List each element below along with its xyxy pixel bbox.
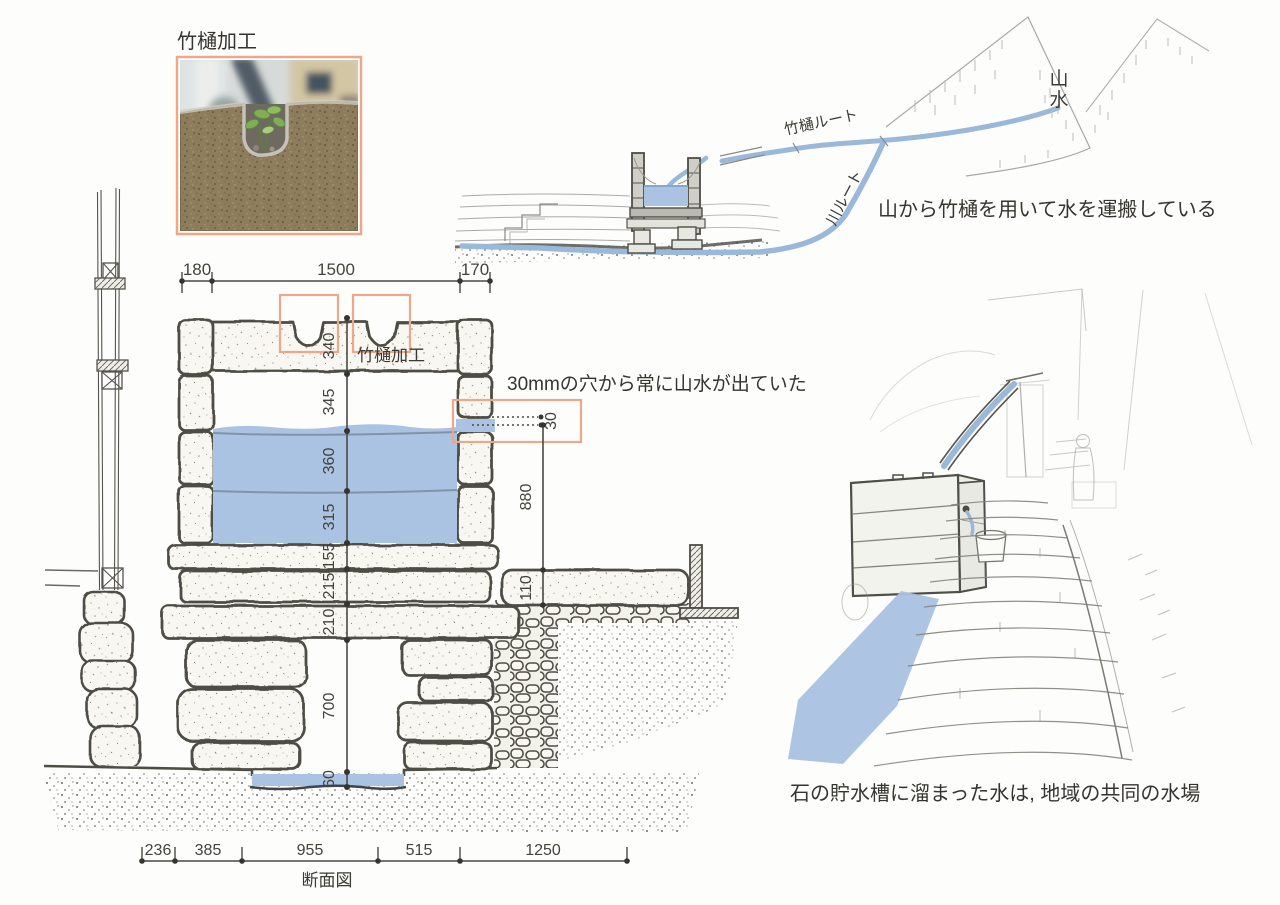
mountain-water-char-1: 山	[1049, 68, 1068, 90]
illustration-canvas: 竹樋加工	[0, 0, 1280, 905]
dim-110: 110	[518, 575, 535, 601]
background-lines	[870, 289, 1252, 508]
dim-345: 345	[321, 389, 338, 416]
dim-1250: 1250	[525, 842, 561, 859]
dim-515: 515	[406, 842, 433, 859]
left-pier	[186, 640, 306, 687]
pool-caption: 石の貯水槽に溜まった水は, 地域の共同の水場	[790, 782, 1200, 805]
dim-955: 955	[297, 842, 324, 859]
dim-880: 880	[518, 484, 535, 511]
dim-155: 155	[321, 543, 338, 570]
dim-340: 340	[321, 333, 338, 360]
dim-236: 236	[145, 842, 172, 859]
dim-315: 315	[321, 504, 338, 531]
bank-lines	[455, 194, 780, 244]
mountains	[886, 17, 1209, 176]
hole-annotation: 30mmの穴から常に山水が出ていた	[507, 373, 807, 395]
pole	[45, 188, 128, 590]
outflow-hole-water	[456, 419, 495, 432]
section-title: 断面図	[302, 871, 353, 890]
top-dimension-line: 180 1500 170	[179, 260, 493, 293]
dim-170: 170	[461, 260, 489, 279]
notch-label: 竹樋加工	[357, 346, 425, 365]
dim-1500: 1500	[317, 260, 355, 279]
dim-215: 215	[321, 573, 338, 600]
bamboo-gutter	[940, 373, 1043, 477]
route-labels: 山 水 竹樋ルート 川ルート 山から竹樋を用いて水を運搬している	[783, 68, 1217, 228]
mountain-water-char-2: 水	[1049, 89, 1068, 111]
drain-stream	[788, 591, 939, 764]
drawing-sheet: 竹樋加工	[0, 0, 1280, 905]
dim-180: 180	[183, 260, 211, 279]
dim-60: 60	[321, 770, 338, 788]
dim-360: 360	[321, 448, 338, 475]
dim-210: 210	[321, 609, 338, 636]
perspective-sketch: 石の貯水槽に溜まった水は, 地域の共同の水場	[788, 289, 1252, 805]
photo-caption: 竹樋加工	[177, 30, 257, 53]
bottom-dimension-line: 236 385 955 515 1250	[139, 842, 630, 864]
stone-cistern-box	[851, 473, 986, 596]
pole-and-stone-stack	[45, 188, 140, 767]
stacked-stones	[80, 592, 140, 767]
route-cistern	[627, 153, 705, 253]
photo-inset: 竹樋加工	[177, 30, 361, 234]
right-pier	[402, 640, 492, 675]
dim-30: 30	[543, 412, 560, 430]
bamboo-route-line	[722, 108, 1058, 161]
dim-385: 385	[195, 842, 222, 859]
bamboo-route-label: 竹樋ルート	[783, 106, 860, 138]
route-sketch: 山 水 竹樋ルート 川ルート 山から竹樋を用いて水を運搬している	[455, 17, 1217, 263]
dim-700: 700	[321, 693, 338, 720]
route-caption: 山から竹樋を用いて水を運搬している	[878, 198, 1217, 221]
photo-image	[178, 58, 360, 231]
slab-210	[162, 606, 518, 638]
cross-section-drawing: 340 345 360 315 155 215 210 700 60 180 1…	[42, 260, 807, 890]
